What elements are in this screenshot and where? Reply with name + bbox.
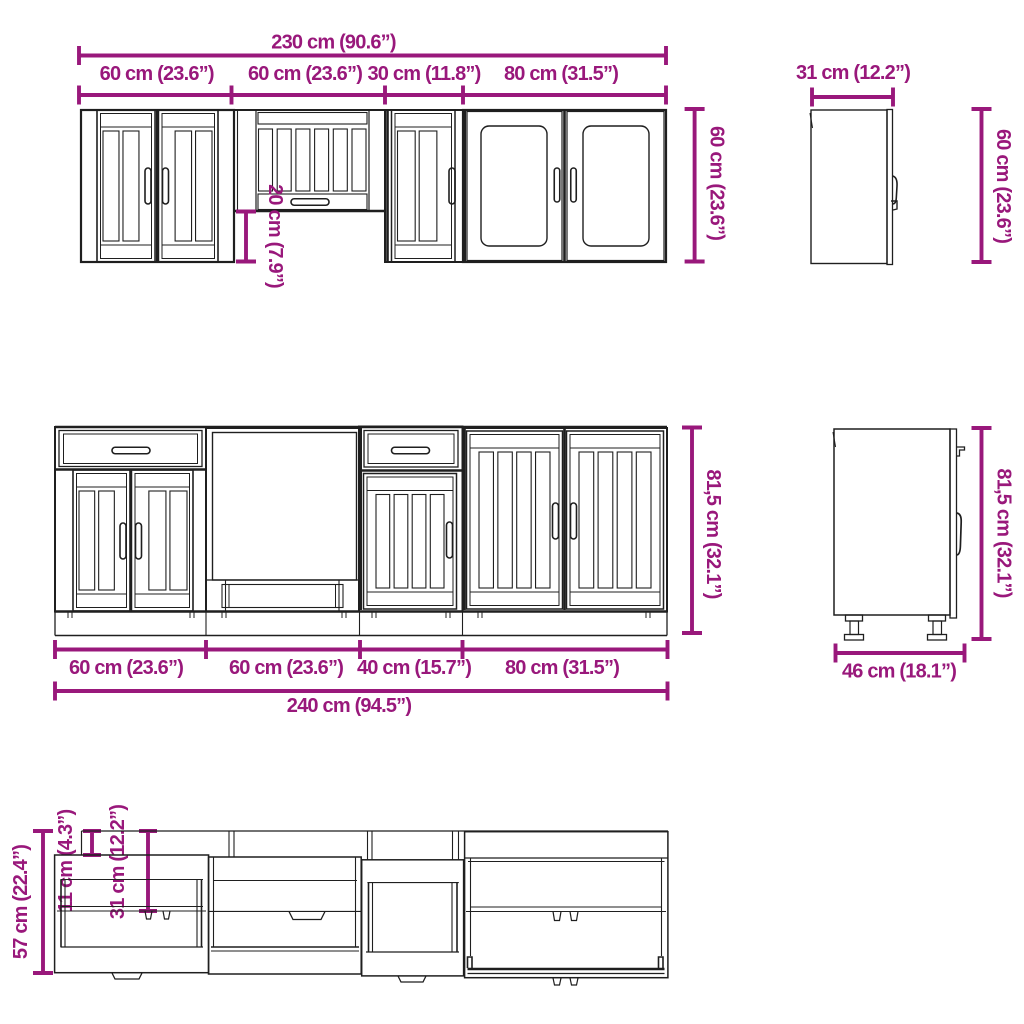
svg-text:81,5 cm (32.1”): 81,5 cm (32.1”) [993, 468, 1015, 597]
svg-text:60 cm (23.6”): 60 cm (23.6”) [248, 63, 362, 85]
svg-text:60 cm (23.6”): 60 cm (23.6”) [706, 126, 728, 240]
svg-text:31 cm (12.2”): 31 cm (12.2”) [107, 805, 129, 919]
svg-text:60 cm (23.6”): 60 cm (23.6”) [229, 657, 343, 679]
svg-text:20 cm (7.9”): 20 cm (7.9”) [264, 184, 286, 288]
svg-text:46 cm (18.1”): 46 cm (18.1”) [842, 661, 956, 683]
svg-text:11 cm (4.3”): 11 cm (4.3”) [55, 810, 77, 913]
svg-text:60 cm (23.6”): 60 cm (23.6”) [100, 63, 214, 85]
svg-text:80 cm (31.5”): 80 cm (31.5”) [505, 657, 619, 679]
svg-text:80 cm (31.5”): 80 cm (31.5”) [504, 63, 618, 85]
svg-text:240 cm (94.5”): 240 cm (94.5”) [287, 695, 412, 717]
svg-text:60 cm (23.6”): 60 cm (23.6”) [992, 129, 1014, 243]
svg-text:60 cm (23.6”): 60 cm (23.6”) [69, 657, 183, 679]
svg-text:40 cm (15.7”): 40 cm (15.7”) [357, 657, 471, 679]
svg-text:81,5 cm (32.1”): 81,5 cm (32.1”) [702, 469, 724, 598]
svg-text:57 cm (22.4”): 57 cm (22.4”) [10, 845, 32, 959]
svg-text:30 cm (11.8”): 30 cm (11.8”) [367, 63, 480, 85]
svg-text:31 cm (12.2”): 31 cm (12.2”) [796, 62, 910, 84]
svg-text:230 cm (90.6”): 230 cm (90.6”) [271, 32, 396, 54]
